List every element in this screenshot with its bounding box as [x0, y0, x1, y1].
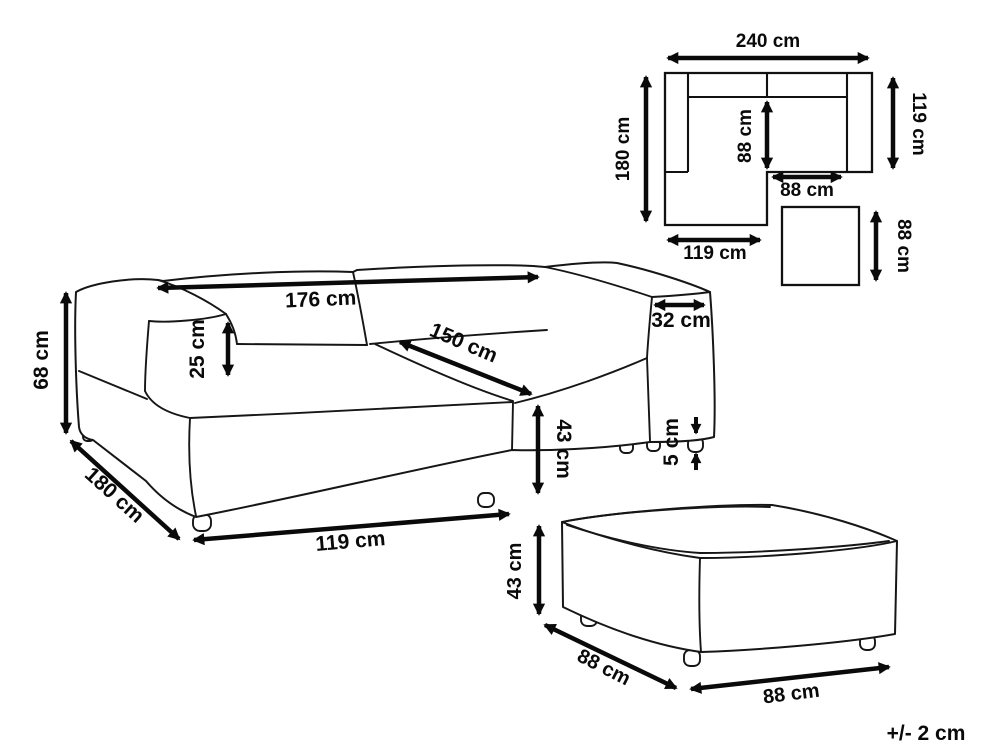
dim-label-plan-chaise-width: 119 cm — [683, 243, 746, 264]
dim-label-backrest-width: 176 cm — [285, 286, 357, 312]
ottoman-body — [562, 505, 897, 652]
plan-ottoman-square — [782, 207, 859, 285]
dim-label-plan-right-depth: 119 cm — [908, 92, 929, 155]
diagram-canvas: 240 cm 180 cm 119 cm 88 cm 88 cm 119 cm … — [0, 0, 1000, 750]
plan-view: 240 cm 180 cm 119 cm 88 cm 88 cm 119 cm … — [613, 31, 929, 285]
dimension-diagram: 240 cm 180 cm 119 cm 88 cm 88 cm 119 cm … — [0, 0, 1000, 750]
dim-label-plan-overall-width: 240 cm — [736, 31, 800, 52]
dim-label-seat-height: 43 cm — [552, 419, 575, 479]
dim-label-plan-overall-depth: 180 cm — [613, 117, 634, 181]
dim-label-armrest-width: 32 cm — [651, 309, 711, 332]
chaise-front-right-edge — [512, 402, 513, 450]
backrest-bottom-edge — [237, 344, 367, 345]
dim-label-armrest-height: 25 cm — [186, 319, 209, 379]
dim-label-plan-seat-depth: 88 cm — [735, 109, 756, 163]
dim-label-ottoman-height: 43 cm — [504, 543, 526, 600]
dim-label-sofa-front-width: 119 cm — [315, 527, 387, 556]
sofa-drawing: 68 cm 180 cm 119 cm 176 cm 25 cm 150 cm … — [30, 262, 715, 556]
dim-label-sofa-height: 68 cm — [30, 330, 53, 390]
ottoman-drawing: 43 cm 88 cm 88 cm — [504, 505, 897, 709]
dim-label-ottoman-width: 88 cm — [762, 680, 821, 709]
sofa-leg — [478, 493, 494, 507]
sofa-silhouette — [75, 262, 714, 517]
dim-label-plan-ottoman: 88 cm — [893, 219, 914, 273]
dim-label-plan-seat-width: 88 cm — [780, 180, 834, 201]
tolerance-note: +/- 2 cm — [887, 722, 966, 745]
dim-label-leg-height: 5 cm — [660, 418, 683, 466]
